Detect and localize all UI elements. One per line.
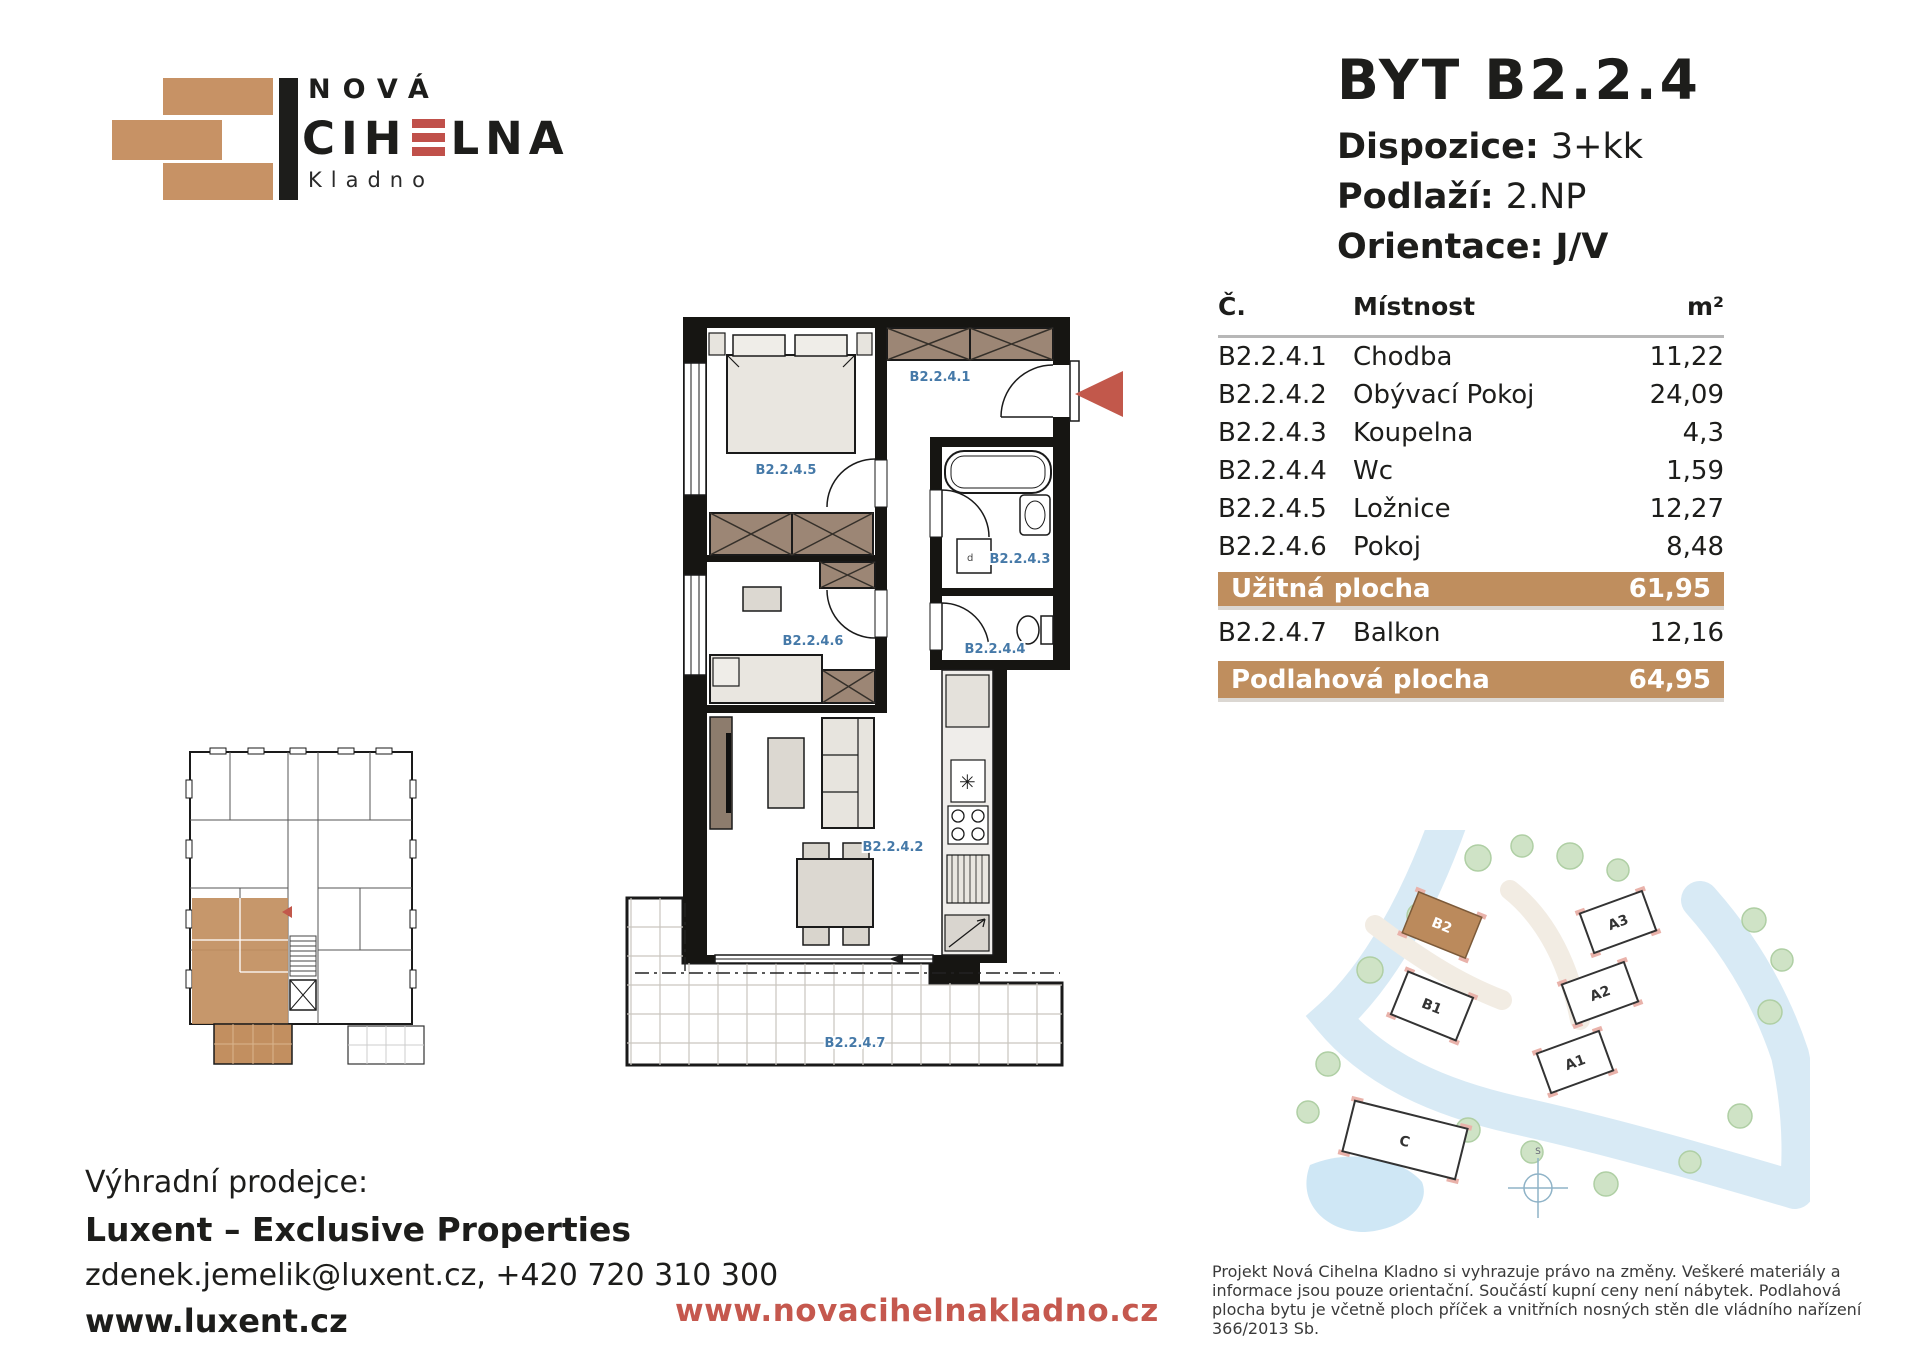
col-room: Místnost <box>1353 292 1687 321</box>
red-e-glyph <box>412 119 445 156</box>
toilet <box>1017 616 1053 644</box>
bathtub <box>945 451 1051 493</box>
table-row: B2.2.4.4 Wc 1,59 <box>1218 452 1724 490</box>
logo-brick-bottom <box>163 163 273 200</box>
building-a1: A1 <box>1532 1026 1619 1098</box>
desk <box>743 587 781 611</box>
building-a3: A3 <box>1575 886 1662 958</box>
logo-word-cihelna: CIHLNA <box>302 112 570 165</box>
floor-area-bar: Podlahová plocha 64,95 <box>1218 661 1724 698</box>
room-label-wc: B2.2.4.4 <box>965 642 1026 657</box>
balcony-door <box>715 954 933 964</box>
room-label-balkon: B2.2.4.7 <box>825 1036 886 1051</box>
spec-dispozice: Dispozice:3+kk <box>1337 122 1643 172</box>
room-label-pokoj: B2.2.4.6 <box>783 634 844 649</box>
brand-logo: NOVÁ CIHLNA Kladno <box>112 60 552 210</box>
room-label-loznice: B2.2.4.5 <box>756 463 817 478</box>
seller-intro: Výhradní prodejce: <box>85 1168 778 1198</box>
logo-brick-middle <box>112 120 222 160</box>
room-label-koupelna: B2.2.4.3 <box>990 552 1051 567</box>
kitchen-counter: ✳ <box>942 670 993 955</box>
stairs <box>290 936 316 976</box>
spec-podlazi: Podlaží:2.NP <box>1337 172 1643 222</box>
room-label-chodba: B2.2.4.1 <box>910 370 971 385</box>
seller-name: Luxent – Exclusive Properties <box>85 1213 778 1246</box>
floor-plan: d ✳ <box>555 255 1135 1075</box>
elevator <box>290 980 316 1010</box>
table-row: B2.2.4.5 Ložnice 12,27 <box>1218 490 1724 528</box>
table-row: B2.2.4.1 Chodba 11,22 <box>1218 338 1724 376</box>
site-map: B2 B1 A3 A2 A1 C S <box>1270 830 1810 1250</box>
mini-balconies <box>214 1024 424 1064</box>
table-row: B2.2.4.2 Obývací Pokoj 24,09 <box>1218 376 1724 414</box>
col-number: Č. <box>1218 292 1353 321</box>
sink-icon: ✳ <box>959 770 976 794</box>
disclaimer-text: Projekt Nová Cihelna Kladno si vyhrazuje… <box>1212 1262 1877 1338</box>
tv-cabinet <box>710 717 732 829</box>
logo-city: Kladno <box>308 168 434 192</box>
sofa <box>822 718 874 828</box>
room-label-obyvaci-pokoj: B2.2.4.2 <box>863 840 924 855</box>
project-website-link[interactable]: www.novacihelnakladno.cz <box>675 1293 1159 1329</box>
coffee-table <box>768 738 804 808</box>
single-bed <box>710 655 822 703</box>
table-row: B2.2.4.3 Koupelna 4,3 <box>1218 414 1724 452</box>
useful-area-bar: Užitná plocha 61,95 <box>1218 572 1724 606</box>
compass-north-label: S <box>1535 1147 1541 1157</box>
entrance-arrow-icon <box>1075 371 1123 417</box>
svg-text:d: d <box>967 553 973 564</box>
apartment-specs: Dispozice:3+kk Podlaží:2.NP Orientace:J/… <box>1337 122 1643 272</box>
page-title: BYT B2.2.4 <box>1337 48 1701 112</box>
room-table-header: Č. Místnost m² <box>1218 292 1724 335</box>
col-area: m² <box>1687 292 1724 321</box>
washing-machine: d <box>957 539 991 573</box>
bath-sink <box>1020 495 1050 535</box>
spec-orientace: Orientace:J/V <box>1337 222 1643 272</box>
highlighted-unit <box>192 898 292 1024</box>
table-row-balkon: B2.2.4.7 Balkon 12,16 <box>1218 614 1724 652</box>
building-overview-plan <box>170 740 440 1080</box>
logo-vertical-bar <box>279 78 298 200</box>
seller-contact[interactable]: zdenek.jemelik@luxent.cz, +420 720 310 3… <box>85 1261 778 1291</box>
logo-brick-top <box>163 78 273 115</box>
logo-word-nova: NOVÁ <box>308 74 441 105</box>
room-table: Č. Místnost m² B2.2.4.1 Chodba 11,22 B2.… <box>1218 292 1724 698</box>
table-row: B2.2.4.6 Pokoj 8,48 <box>1218 528 1724 566</box>
